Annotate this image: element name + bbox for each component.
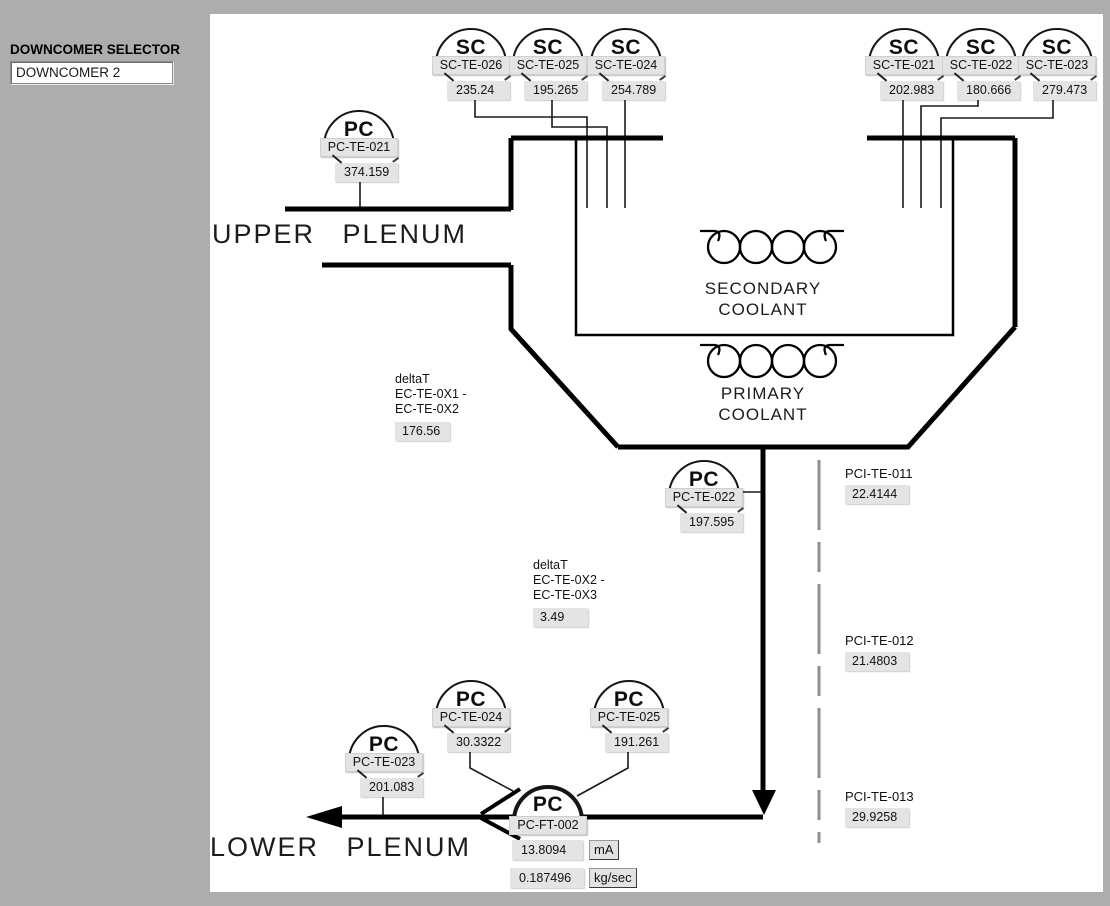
sensor-value: 201.083: [360, 778, 423, 797]
down-flow-arrow: [752, 790, 776, 815]
sensor-value: 235.24: [447, 81, 510, 100]
secondary-coil-icon: [700, 231, 844, 263]
sensor-value: 22.4144: [845, 485, 909, 504]
sensor-value: 374.159: [335, 163, 398, 182]
delta-t-value: 176.56: [395, 422, 450, 441]
sensor-pc-te-025: PC PC-TE-025 191.261: [590, 680, 668, 785]
sensor-value: 197.595: [680, 513, 743, 532]
sensor-pc-te-022: PC PC-TE-022 197.595: [665, 460, 743, 565]
sensor-tag: PCI-TE-011: [845, 466, 925, 481]
delta-t-minuend: EC-TE-0X2 -: [533, 573, 643, 588]
sensor-value: 29.9258: [845, 808, 909, 827]
sensor-sc-te-026: SC SC-TE-026 235.24: [432, 28, 510, 133]
delta-t-minuend: EC-TE-0X1 -: [395, 387, 505, 402]
sensor-pc-te-024: PC PC-TE-024 30.3322: [432, 680, 510, 785]
flow-current-unit: mA: [589, 840, 619, 860]
flow-current-value: 13.8094: [512, 840, 583, 860]
sensor-value: 279.473: [1033, 81, 1096, 100]
sensor-pc-ft-002: PC PC-FT-002 13.8094 mA 0.187496 kg/sec: [509, 785, 587, 895]
sensor-pc-te-021: PC PC-TE-021 374.159: [320, 110, 398, 215]
sensor-sc-te-025: SC SC-TE-025 195.265: [509, 28, 587, 133]
sensor-pc-te-023: PC PC-TE-023 201.083: [345, 725, 423, 830]
sensor-value: 195.265: [524, 81, 587, 100]
delta-t-2: deltaT EC-TE-0X2 - EC-TE-0X3 3.49: [533, 558, 643, 627]
sensor-sc-te-022: SC SC-TE-022 180.666: [942, 28, 1020, 133]
lower-plenum-label: LOWER PLENUM: [210, 832, 471, 863]
sensor-sc-te-023: SC SC-TE-023 279.473: [1018, 28, 1096, 133]
instrument-type: PC: [509, 793, 587, 817]
delta-t-title: deltaT: [533, 558, 643, 573]
sensor-value: 191.261: [605, 733, 668, 752]
delta-t-subtrahend: EC-TE-0X2: [395, 402, 505, 417]
sensor-tag: PCI-TE-013: [845, 789, 925, 804]
sensor-pci-te-013: PCI-TE-013 29.9258: [845, 789, 925, 827]
primary-coolant-label: PRIMARY COOLANT: [663, 383, 863, 425]
sensor-sc-te-021: SC SC-TE-021 202.983: [865, 28, 943, 133]
upper-plenum-label: UPPER PLENUM: [212, 219, 467, 250]
left-flow-arrow: [306, 806, 342, 828]
secondary-coolant-label: SECONDARY COOLANT: [663, 278, 863, 320]
delta-t-1: deltaT EC-TE-0X1 - EC-TE-0X2 176.56: [395, 372, 505, 441]
delta-t-title: deltaT: [395, 372, 505, 387]
delta-t-value: 3.49: [533, 608, 588, 627]
flow-rate-unit: kg/sec: [589, 868, 637, 888]
sensor-sc-te-024: SC SC-TE-024 254.789: [587, 28, 665, 133]
sensor-value: 180.666: [957, 81, 1020, 100]
sensor-tag: PCI-TE-012: [845, 633, 925, 648]
sensor-value: 30.3322: [447, 733, 510, 752]
flow-rate-value: 0.187496: [510, 868, 584, 888]
sensor-value: 202.983: [880, 81, 943, 100]
labview-front-panel: { "window": { "background": "#adadad", "…: [0, 0, 1110, 906]
primary-coil-icon: [700, 345, 844, 377]
piping-diagram: [0, 0, 1110, 906]
delta-t-subtrahend: EC-TE-0X3: [533, 588, 643, 603]
sensor-pci-te-012: PCI-TE-012 21.4803: [845, 633, 925, 671]
sensor-tag: PC-FT-002: [509, 816, 587, 835]
sensor-value: 21.4803: [845, 652, 909, 671]
sensor-pci-te-011: PCI-TE-011 22.4144: [845, 466, 925, 504]
sensor-value: 254.789: [602, 81, 665, 100]
